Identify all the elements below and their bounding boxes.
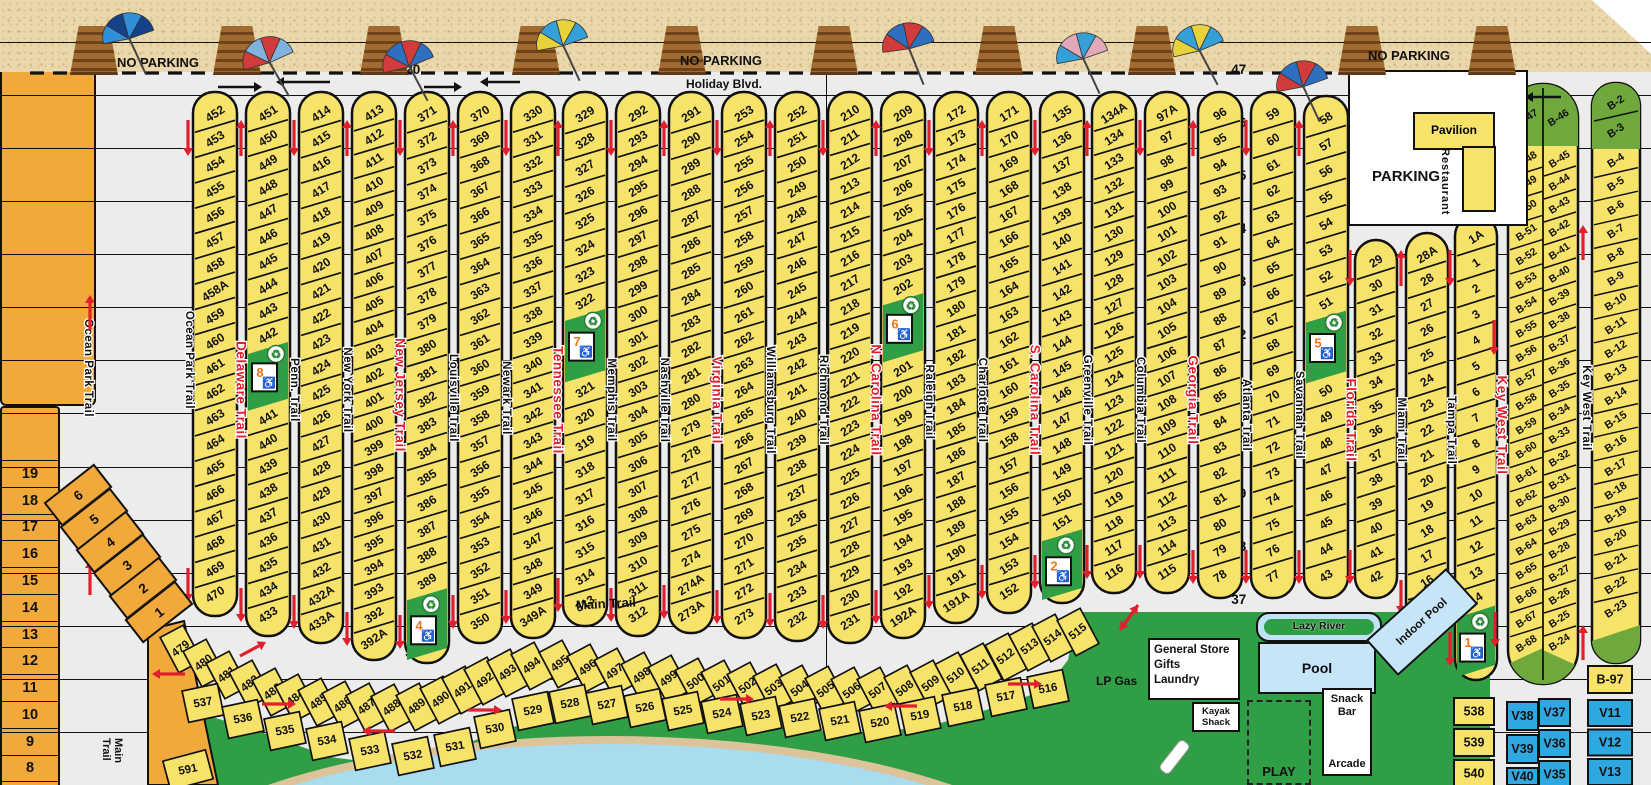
site-B-97-label: B-97 (1596, 673, 1623, 687)
lp-gas-label: LP Gas (1096, 674, 1137, 688)
site-538-label: 538 (1464, 705, 1485, 719)
laundry-label: Laundry (1154, 673, 1238, 688)
recycle-glyph: ♻ (588, 314, 599, 328)
trail-delaware-trail: Delaware Trail (234, 341, 249, 439)
trail-charlotte-trail: Charlotte Trail (976, 358, 988, 443)
lazy-river-label: Lazy River (1264, 619, 1374, 635)
snack-bar-arcade[interactable]: Snack Bar Arcade (1322, 688, 1372, 776)
trail-greenville-trail: Greenville Trail (1081, 355, 1093, 445)
trail-georgia-trail: Georgia Trail (1186, 355, 1201, 444)
direction-arrow-head (183, 148, 193, 156)
recycle-glyph: ♻ (271, 347, 282, 361)
main-trail-label: Main Trail (576, 594, 637, 612)
site-539-label: 539 (1464, 736, 1485, 750)
wheelchair-icon: ♿ (1470, 647, 1484, 660)
direction-arrow-head (480, 77, 488, 87)
trail-n-carolina-trail: N. Carolina Trail (869, 344, 884, 455)
beach-umbrella-icon (1163, 12, 1233, 92)
beach-umbrella-icon (1047, 20, 1117, 100)
trail-nashville-trail: Nashville Trail (658, 358, 670, 443)
site-V38-label: V38 (1511, 709, 1533, 723)
direction-arrow-head (85, 295, 95, 303)
direction-arrow-head (712, 616, 722, 624)
site-V36-label: V36 (1543, 737, 1565, 751)
direction-arrow-head (606, 614, 616, 622)
play-label: PLAY (1262, 764, 1295, 779)
site-V11-label: V11 (1599, 706, 1621, 720)
direction-arrow-head (1578, 625, 1588, 633)
direction-arrow-head (1578, 225, 1588, 233)
wheelchair-icon: ♿ (421, 629, 435, 642)
trail-richmond-trail: Richmond Trail (817, 355, 829, 445)
direction-arrow-head (1188, 576, 1198, 584)
trail-ocean-park-trail: Ocean Park Trail (82, 319, 94, 417)
direction-arrow-head (1396, 250, 1406, 258)
arcade-label: Arcade (1324, 758, 1370, 771)
beach-umbrella-icon (873, 10, 943, 90)
snack-bar-label: Snack Bar (1324, 693, 1370, 718)
wheelchair-icon: ♿ (897, 328, 911, 341)
wheelchair-icon: ♿ (579, 346, 593, 359)
wheelchair-icon: ♿ (1056, 570, 1070, 583)
direction-arrow-head (765, 619, 775, 627)
direction-arrow (240, 646, 259, 656)
beach-umbrella-icon (527, 7, 597, 87)
trail-savannah-trail: Savannah Trail (1293, 371, 1305, 459)
site-V12-label: V12 (1599, 736, 1621, 750)
pavilion-building[interactable]: Pavilion (1413, 112, 1495, 150)
kayak-shack[interactable]: Kayak Shack (1192, 702, 1240, 732)
pool-label: Pool (1302, 660, 1332, 676)
recycle-glyph: ♻ (1061, 539, 1072, 553)
site-540-label: 540 (1464, 767, 1485, 781)
trail-ocean-park-trail: Ocean Park Trail (183, 311, 195, 409)
beach-umbrella-icon (373, 28, 443, 108)
recycle-glyph: ♻ (426, 598, 437, 612)
trail-virginia-trail: Virginia Trail (710, 356, 725, 444)
trail-atlanta-trail: Atlanta Trail (1240, 379, 1252, 451)
no-parking-label-center: NO PARKING (680, 53, 762, 68)
trail-new-jersey-trail: New Jersey Trail (393, 338, 408, 452)
site-V35-label: V35 (1543, 768, 1565, 782)
trail-louisville-trail: Louisville Trail (447, 354, 459, 442)
site-V40-label: V40 (1511, 770, 1533, 784)
trail-williamsburg-trail: Williamsburg Trail (764, 346, 776, 454)
trail-tennessee-trail: Tennessee Trail (551, 346, 566, 454)
direction-arrow-head (395, 641, 405, 649)
direction-arrow-head (342, 638, 352, 646)
recycle-glyph: ♻ (906, 299, 917, 313)
trail-florida-trail: Florida Trail (1344, 378, 1359, 461)
restaurant-building[interactable] (1462, 146, 1496, 212)
direction-arrow-head (454, 82, 462, 92)
trail-newark-trail: Newark Trail (500, 361, 512, 435)
trail-penn-trail: Penn. Trail (288, 358, 300, 422)
beach-umbrella-icon (1267, 48, 1337, 128)
direction-arrow-head (289, 621, 299, 629)
site-V13-label: V13 (1599, 765, 1621, 779)
beach-umbrella-icon (93, 0, 163, 80)
main-trail-south-label: Main Trail (108, 738, 124, 785)
pool[interactable]: Pool (1258, 642, 1376, 694)
direction-arrow-head (236, 614, 246, 622)
lazy-river[interactable]: Lazy River (1256, 612, 1382, 642)
no-parking-label-right: NO PARKING (1368, 48, 1450, 63)
beach-umbrella-icon (233, 24, 303, 104)
trail-miami-trail: Miami Trail (1395, 398, 1407, 463)
wheelchair-icon: ♿ (1320, 347, 1334, 360)
site-V39-label: V39 (1511, 742, 1533, 756)
trail-memphis-trail: Memphis Trail (605, 358, 617, 441)
trail-new-york-trail: New York Trail (341, 347, 353, 432)
parking-label: PARKING (1372, 168, 1440, 185)
recycle-glyph: ♻ (1329, 316, 1340, 330)
trail-key-west-trail: Key West Trail (1580, 365, 1592, 450)
play-area[interactable]: PLAY (1247, 700, 1311, 785)
trail-s-carolina-trail: S. Carolina Trail (1028, 345, 1043, 456)
site-V37-label: V37 (1543, 706, 1565, 720)
holiday-blvd-label: Holiday Blvd. (686, 77, 762, 91)
general-store-label: General Store (1154, 643, 1238, 658)
recycle-glyph: ♻ (1475, 615, 1486, 629)
trail-tampa-trail: Tampa Trail (1445, 396, 1457, 465)
general-store[interactable]: General Store Gifts Laundry (1148, 638, 1240, 700)
campground-map: 452453454455456457458458A459460461462463… (0, 0, 1651, 785)
pavilion-label: Pavilion (1415, 114, 1493, 146)
gifts-label: Gifts (1154, 658, 1238, 673)
restaurant-label: Restaurant (1437, 148, 1451, 218)
trail-raleigh-trail: Raleigh Trail (923, 365, 935, 440)
kayak-shack-label: Kayak Shack (1202, 706, 1230, 728)
trail-key-west-trail: Key West Trail (1495, 375, 1510, 474)
wheelchair-icon: ♿ (262, 376, 276, 389)
trail-columbia-trail: Columbia Trail (1134, 357, 1146, 443)
